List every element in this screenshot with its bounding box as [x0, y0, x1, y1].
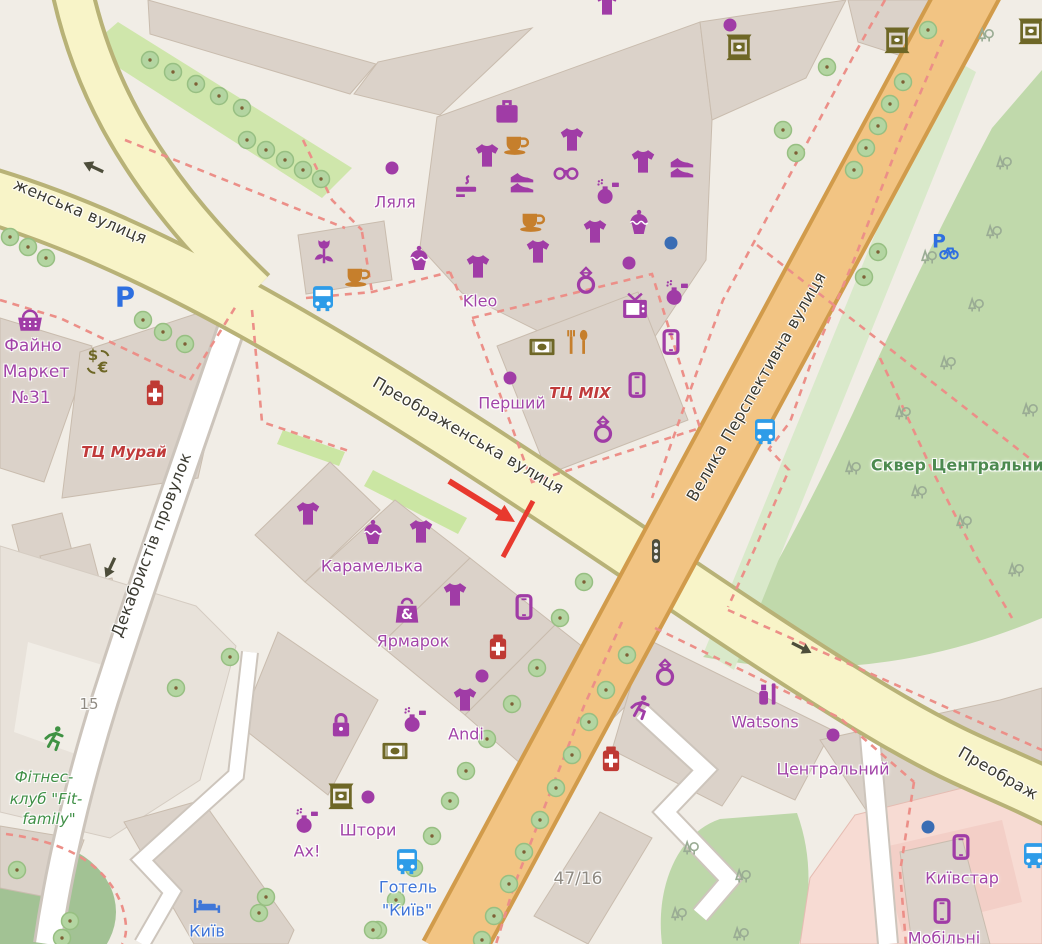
tree-trunk-dot — [319, 177, 322, 180]
atm-icon — [727, 35, 752, 61]
dot-icon — [386, 162, 399, 175]
coffee-icon — [520, 214, 544, 232]
tree-trunk-dot — [888, 102, 891, 105]
atm-icon — [885, 28, 910, 54]
bus-icon — [313, 286, 333, 311]
tree-trunk-dot — [535, 666, 538, 669]
coffee-icon — [504, 137, 528, 155]
tree-trunk-dot — [926, 28, 929, 31]
bus-icon — [755, 419, 775, 444]
tree-trunk-dot — [582, 580, 585, 583]
tree-trunk-dot — [448, 799, 451, 802]
tree-trunk-dot — [44, 256, 47, 259]
tree-trunk-dot — [901, 80, 904, 83]
tree-trunk-dot — [825, 65, 828, 68]
oneway-icon — [100, 555, 119, 580]
basket-icon — [18, 311, 42, 331]
atm-icon — [1019, 19, 1042, 45]
tree-trunk-dot — [26, 245, 29, 248]
tree-trunk-dot — [171, 70, 174, 73]
tree-trunk-dot — [371, 928, 374, 931]
bus-icon — [1024, 843, 1042, 868]
tree-trunk-dot — [794, 151, 797, 154]
trafficsignal-icon — [652, 539, 660, 563]
oneway-icon — [81, 157, 106, 176]
dot-icon — [623, 257, 636, 270]
tree-trunk-dot — [15, 868, 18, 871]
building — [240, 632, 378, 795]
bus-icon — [397, 849, 417, 874]
tree-trunk-dot — [587, 720, 590, 723]
map-canvas[interactable]: $€ P P & — [0, 0, 1042, 944]
dot-icon — [827, 729, 840, 742]
tree-trunk-dot — [464, 769, 467, 772]
tree-trunk-dot — [174, 686, 177, 689]
dot-icon — [362, 791, 375, 804]
map-base-svg: $€ P P & — [0, 0, 1042, 944]
tree-trunk-dot — [554, 786, 557, 789]
tree-trunk-dot — [228, 655, 231, 658]
tree-trunk-dot — [480, 938, 483, 941]
tree-trunk-dot — [570, 753, 573, 756]
tree-trunk-dot — [183, 342, 186, 345]
tree-trunk-dot — [485, 737, 488, 740]
tree-trunk-dot — [8, 235, 11, 238]
tree-trunk-dot — [876, 124, 879, 127]
tree-trunk-dot — [148, 58, 151, 61]
tree-trunk-dot — [510, 702, 513, 705]
dot-icon — [922, 821, 935, 834]
tree-trunk-dot — [245, 138, 248, 141]
tree-trunk-dot — [283, 158, 286, 161]
dot-icon — [665, 237, 678, 250]
tree-trunk-dot — [430, 834, 433, 837]
dot-icon — [504, 372, 517, 385]
perfume-icon — [296, 808, 318, 833]
tshirt-icon — [596, 0, 619, 15]
tree-trunk-dot — [194, 82, 197, 85]
tree-trunk-dot — [781, 128, 784, 131]
tree-trunk-dot — [852, 168, 855, 171]
tree-trunk-dot — [301, 168, 304, 171]
tree-trunk-dot — [625, 653, 628, 656]
tree-trunk-dot — [876, 250, 879, 253]
tree-icon — [474, 932, 491, 944]
tree-trunk-dot — [264, 895, 267, 898]
tree-trunk-dot — [141, 318, 144, 321]
atm-icon — [329, 784, 354, 810]
hedge-1 — [277, 430, 345, 466]
tree-trunk-dot — [864, 146, 867, 149]
tree-trunk-dot — [492, 914, 495, 917]
building — [298, 221, 392, 294]
tree-trunk-dot — [862, 275, 865, 278]
banknote-icon — [530, 339, 555, 355]
cosmetics-icon — [759, 683, 775, 704]
tree-trunk-dot — [604, 688, 607, 691]
tree-trunk-dot — [68, 919, 71, 922]
tree-trunk-dot — [507, 882, 510, 885]
tree-trunk-dot — [257, 911, 260, 914]
banknote-icon — [383, 743, 408, 759]
tree-trunk-dot — [217, 94, 220, 97]
dot-icon — [476, 670, 489, 683]
tree-trunk-dot — [522, 850, 525, 853]
tree-trunk-dot — [394, 898, 397, 901]
tree-trunk-dot — [240, 106, 243, 109]
coffee-icon — [345, 269, 369, 287]
parking-icon — [115, 281, 135, 313]
tree-trunk-dot — [538, 818, 541, 821]
tree-trunk-dot — [264, 148, 267, 151]
tree-trunk-dot — [161, 330, 164, 333]
perfume-icon — [404, 707, 426, 732]
dot-icon — [724, 19, 737, 32]
tree-trunk-dot — [60, 936, 63, 939]
tree-trunk-dot — [558, 616, 561, 619]
